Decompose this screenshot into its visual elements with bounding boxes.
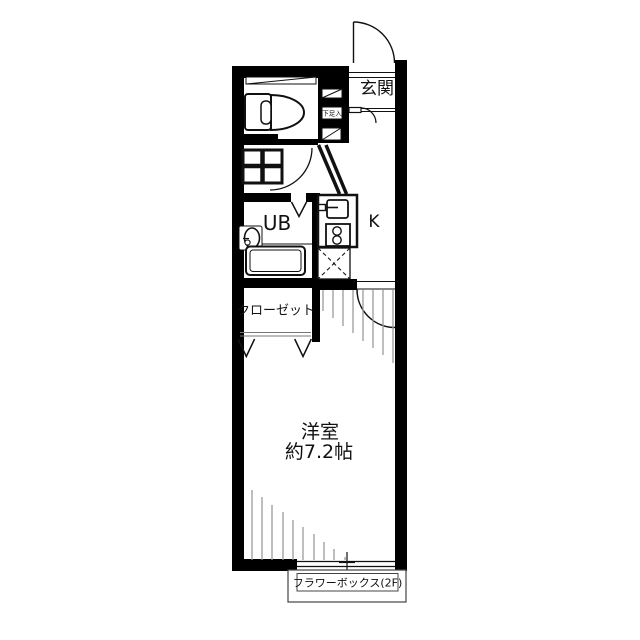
floorplan: 玄関 下足入	[0, 0, 640, 640]
bathtub-inner	[250, 250, 301, 272]
faucet-base	[319, 205, 326, 211]
room-name-label: 洋室	[301, 421, 339, 443]
shoe-box-label: 下足入	[322, 110, 342, 118]
wall-toilet-bottom	[232, 134, 278, 145]
washing-machine-icon	[243, 150, 282, 183]
room-window	[297, 552, 395, 572]
kitchen-sink	[327, 200, 348, 218]
stove-burner-2	[333, 236, 341, 244]
wall-right	[395, 60, 407, 571]
kitchen-label: K	[368, 212, 380, 232]
entrance-label: 玄関	[360, 79, 394, 99]
bathtub-icon	[246, 247, 305, 276]
ub-door-mark	[292, 202, 307, 217]
toilet-icon	[245, 94, 304, 130]
wall-ub-bottom	[232, 278, 320, 288]
washer-area	[243, 145, 347, 194]
room-size-label: 約7.2帖	[285, 441, 353, 463]
kitchen	[318, 195, 357, 279]
wall-top	[232, 66, 349, 78]
fridge-space	[318, 248, 350, 279]
closet-door-mark-right	[295, 339, 312, 357]
wall-bottom	[232, 559, 297, 571]
unit-bath-label: UB	[263, 211, 291, 235]
hall-door-arc	[361, 108, 376, 123]
entrance-area	[349, 22, 395, 123]
closet-label: クローゼット	[237, 304, 315, 319]
entrance-door-arc	[354, 22, 395, 63]
closet	[238, 333, 311, 357]
stove-burner-1	[333, 227, 341, 235]
floorplan-svg: 玄関 下足入	[0, 0, 640, 640]
toilet-handle	[261, 101, 271, 124]
washbasin-drain	[245, 240, 250, 245]
hall-door-leaf	[349, 108, 361, 113]
stove-icon	[326, 224, 350, 246]
flower-box-label: フラワーボックス(2F)	[293, 577, 403, 590]
toilet-room	[245, 77, 316, 130]
wall-kitchen-bottom	[312, 279, 357, 290]
wall-toilet-bottom2	[278, 139, 318, 145]
wall-ub-top	[236, 193, 291, 202]
slope-hatch-bottom	[252, 490, 345, 560]
toilet-bowl	[271, 95, 304, 130]
